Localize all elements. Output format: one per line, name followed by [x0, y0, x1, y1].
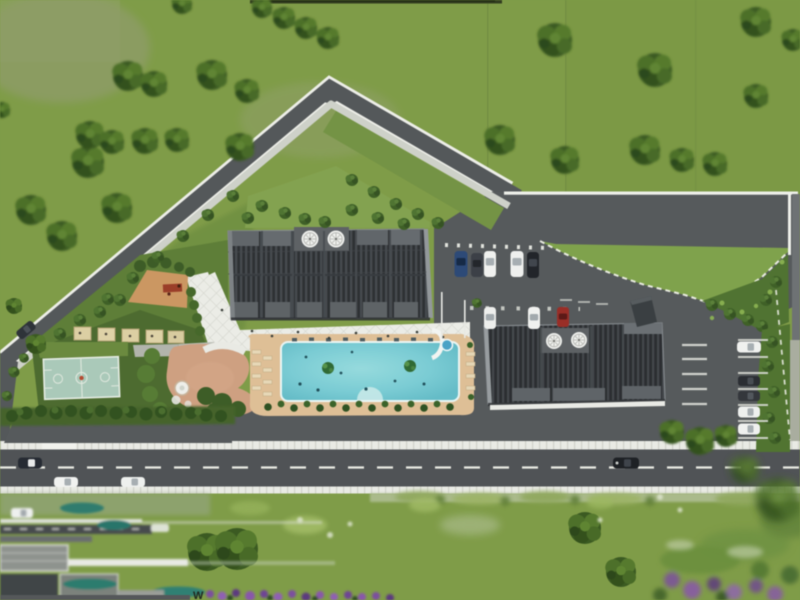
svg-text:W: W: [193, 590, 204, 600]
